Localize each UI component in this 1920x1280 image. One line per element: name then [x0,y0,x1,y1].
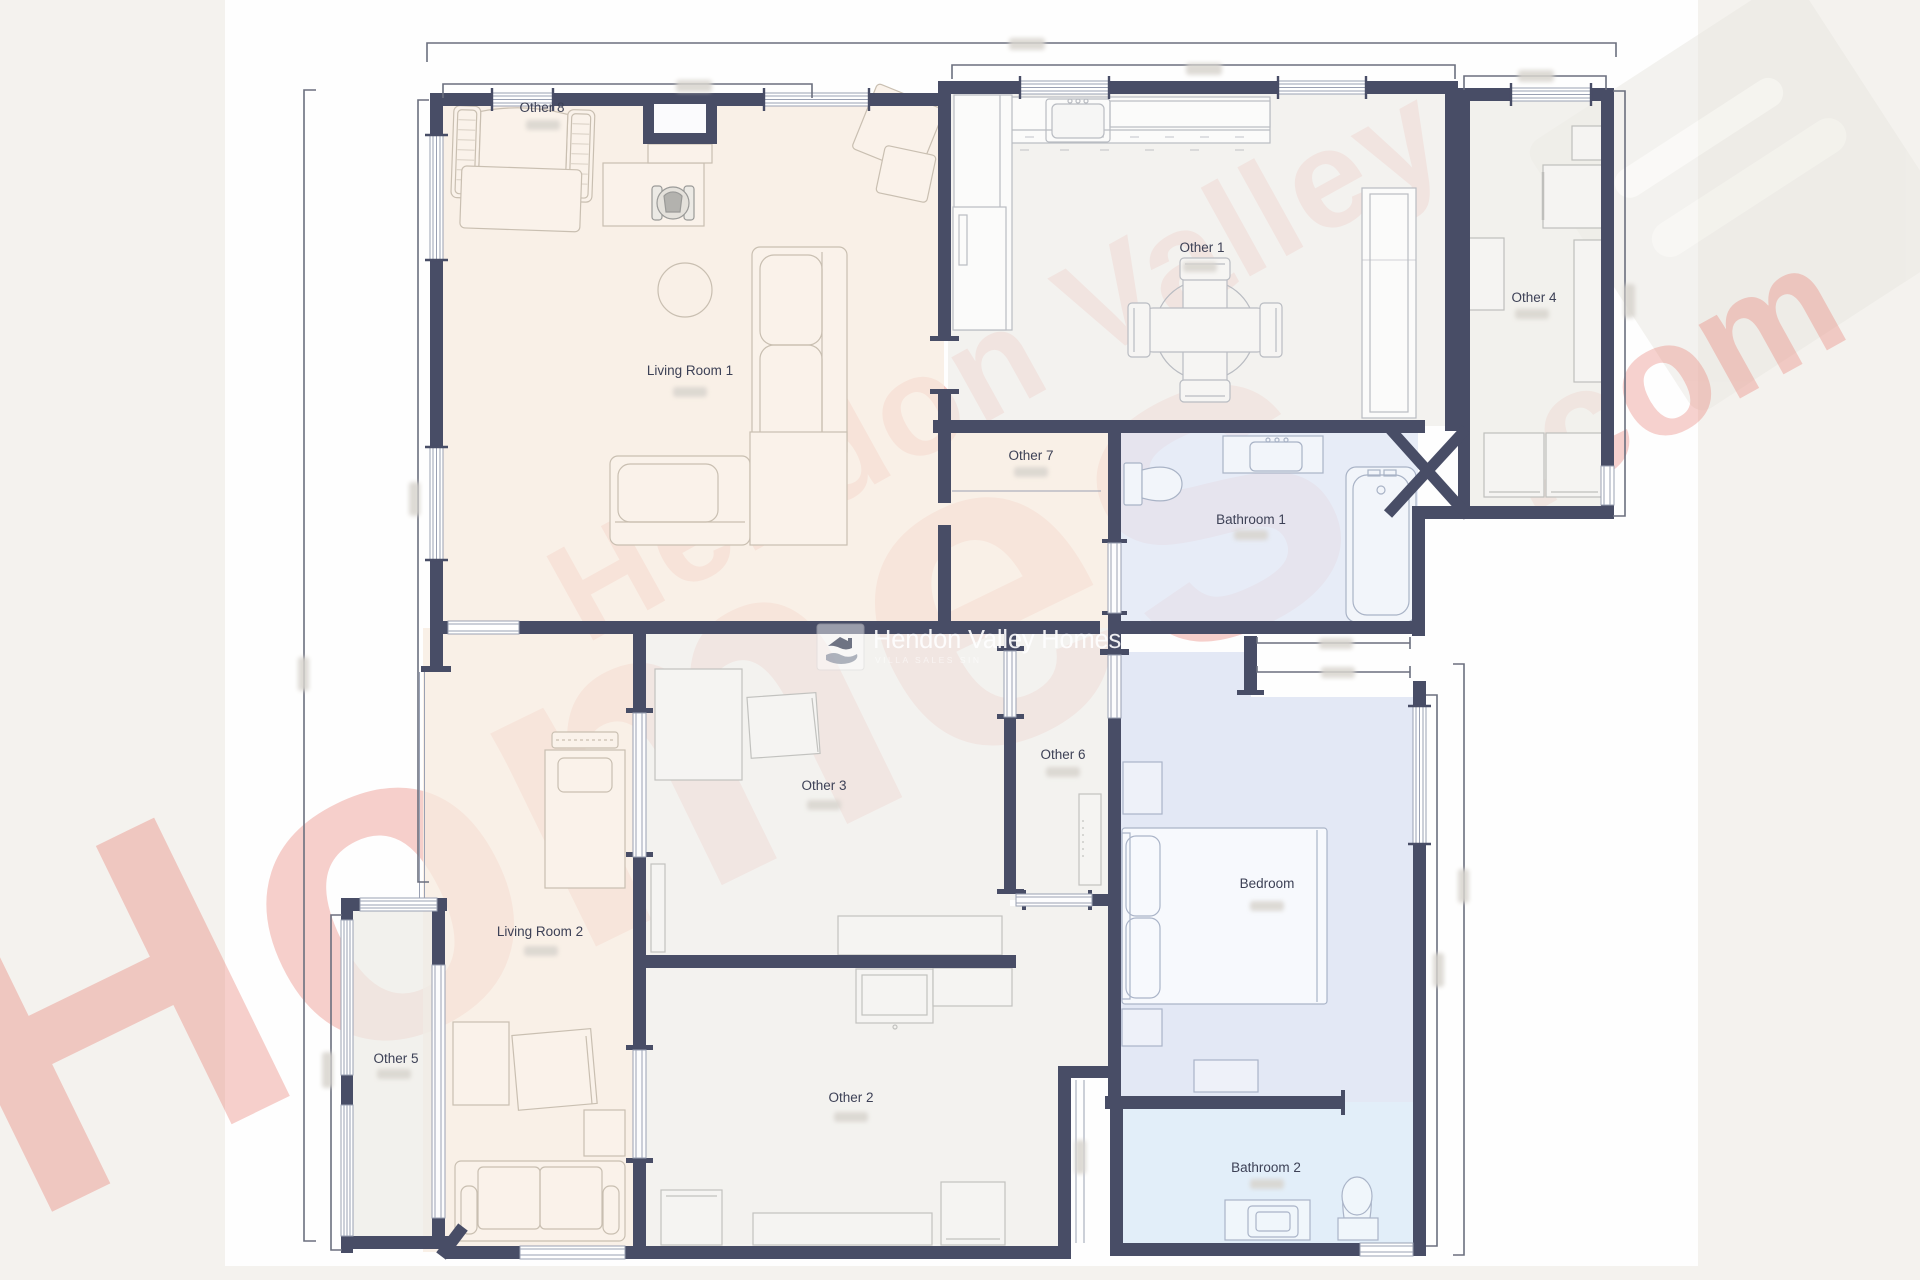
svg-text:Other 5: Other 5 [373,1051,418,1066]
svg-text:Other 2: Other 2 [828,1090,873,1105]
svg-text:Living Room 2: Living Room 2 [497,924,583,939]
svg-text:Bathroom 1: Bathroom 1 [1216,512,1286,527]
svg-text:Other 1: Other 1 [1179,240,1224,255]
svg-text:Other 6: Other 6 [1040,747,1085,762]
svg-text:Living Room 1: Living Room 1 [647,363,733,378]
svg-text:Other 4: Other 4 [1511,290,1557,305]
svg-text:Other 3: Other 3 [801,778,846,793]
svg-text:Bedroom: Bedroom [1240,876,1295,891]
svg-text:Bathroom 2: Bathroom 2 [1231,1160,1301,1175]
svg-text:Other 8: Other 8 [519,100,564,115]
svg-text:Hendon Valley Homes: Hendon Valley Homes [873,626,1121,654]
svg-text:VILLA SALES SIN: VILLA SALES SIN [875,655,981,665]
svg-text:Other 7: Other 7 [1008,448,1053,463]
